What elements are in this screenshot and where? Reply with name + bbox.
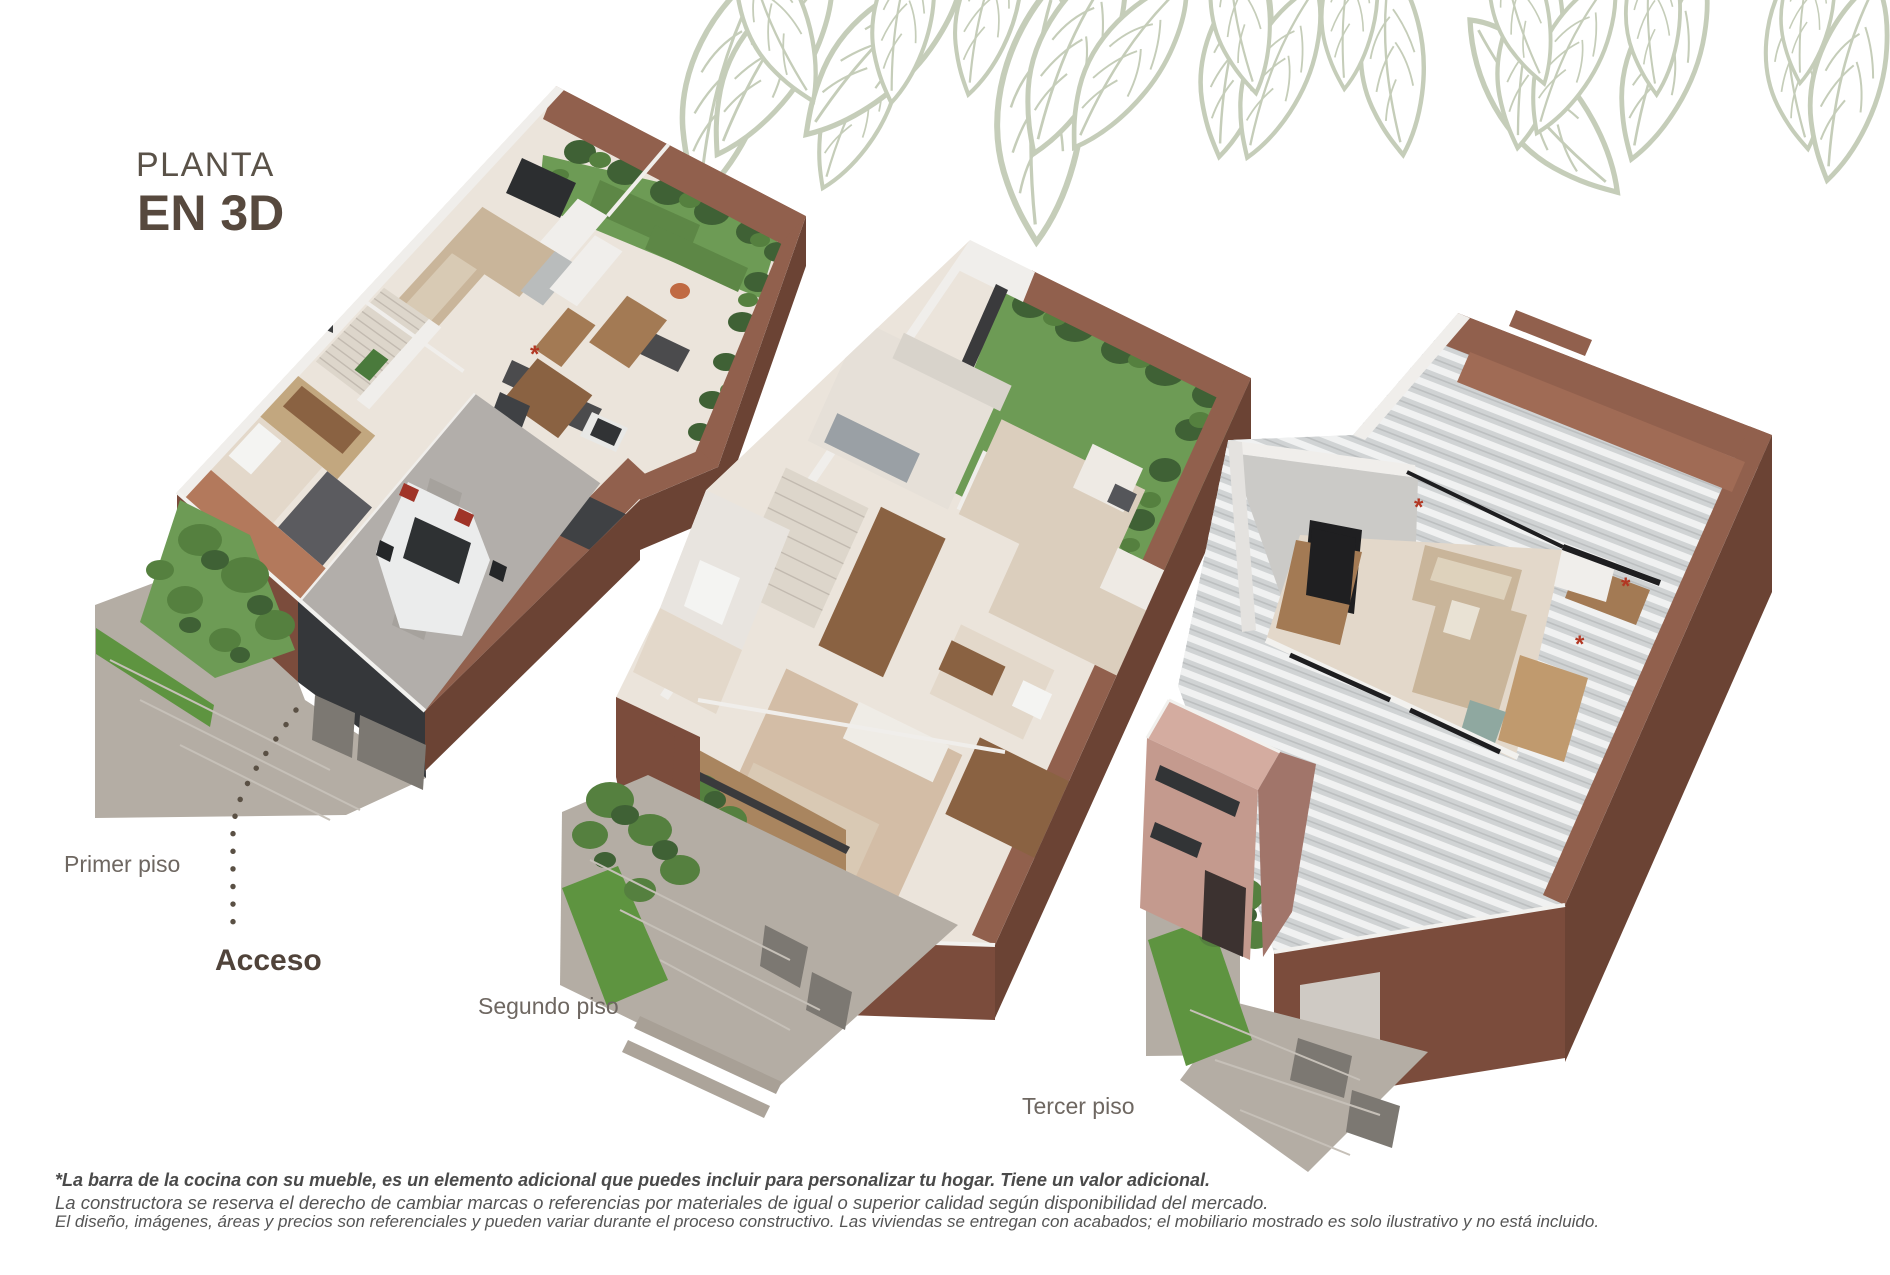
svg-text:*: * [1414,494,1424,521]
svg-text:*: * [530,341,540,368]
svg-text:*: * [1621,573,1631,600]
svg-text:*: * [1575,631,1585,658]
